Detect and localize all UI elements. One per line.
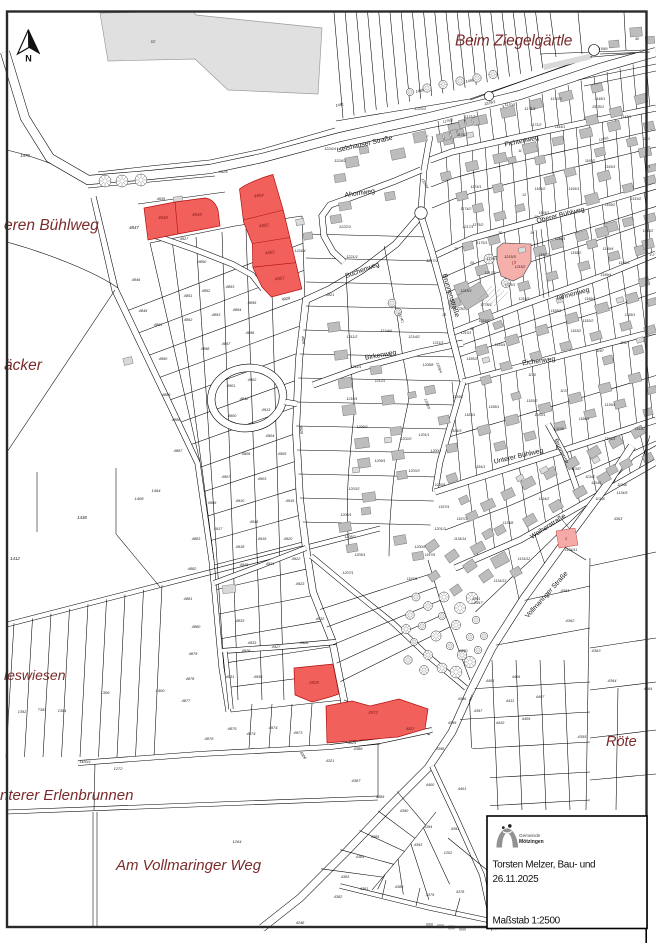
svg-text:Gemeinde: Gemeinde — [519, 833, 541, 838]
svg-text:4881: 4881 — [184, 596, 193, 601]
svg-text:1159/5: 1159/5 — [619, 261, 630, 265]
svg-text:10: 10 — [530, 231, 534, 235]
svg-text:4913: 4913 — [262, 407, 271, 412]
svg-text:11345: 11345 — [595, 497, 605, 501]
svg-text:1205/2: 1205/2 — [345, 535, 356, 539]
svg-text:4973: 4973 — [294, 730, 304, 735]
svg-text:1215/3: 1215/3 — [504, 255, 517, 259]
svg-text:7393: 7393 — [38, 708, 47, 712]
svg-text:4378: 4378 — [456, 890, 465, 894]
svg-text:4915: 4915 — [286, 498, 295, 503]
svg-text:1201/1: 1201/1 — [419, 433, 430, 437]
svg-text:1143/1: 1143/1 — [621, 115, 631, 119]
svg-text:4889: 4889 — [162, 392, 171, 397]
svg-text:4879: 4879 — [189, 651, 198, 656]
svg-text:4929: 4929 — [309, 680, 319, 685]
svg-text:4382: 4382 — [334, 895, 343, 899]
svg-text:4625: 4625 — [219, 169, 229, 174]
svg-text:4393: 4393 — [414, 843, 423, 847]
svg-text:11341: 11341 — [585, 475, 595, 479]
svg-text:1159/4: 1159/4 — [601, 273, 611, 277]
svg-text:4394: 4394 — [424, 825, 432, 829]
svg-text:4923: 4923 — [296, 581, 305, 586]
svg-text:4398: 4398 — [436, 747, 445, 751]
svg-text:1505/1: 1505/1 — [592, 104, 604, 109]
svg-text:4894: 4894 — [233, 307, 242, 312]
svg-text:121/4/2: 121/4/2 — [408, 335, 419, 339]
svg-text:4396: 4396 — [458, 697, 467, 701]
svg-text:16: 16 — [498, 231, 502, 235]
svg-text:4 2: 4 2 — [650, 253, 655, 257]
svg-text:4386: 4386 — [354, 746, 364, 751]
svg-text:1215/2: 1215/2 — [515, 265, 526, 269]
svg-text:4875: 4875 — [228, 726, 238, 731]
svg-text:1137: 1137 — [560, 389, 569, 393]
svg-text:1208/8: 1208/8 — [423, 363, 434, 367]
svg-text:1134/13: 1134/13 — [494, 579, 506, 583]
svg-text:4927: 4927 — [272, 644, 281, 649]
svg-text:1187: 1187 — [596, 349, 605, 353]
svg-text:4625: 4625 — [348, 741, 357, 745]
svg-text:4639: 4639 — [157, 197, 166, 201]
svg-text:4380: 4380 — [395, 885, 404, 889]
svg-text:1174/1: 1174/1 — [471, 185, 482, 189]
svg-text:4933: 4933 — [248, 640, 257, 645]
svg-text:4874: 4874 — [247, 731, 257, 736]
svg-text:4409: 4409 — [522, 717, 531, 721]
svg-text:1412: 1412 — [10, 556, 20, 561]
svg-text:1183/2: 1183/2 — [571, 329, 581, 333]
svg-text:1175/1: 1175/1 — [477, 241, 488, 245]
svg-text:4397: 4397 — [474, 709, 483, 713]
svg-text:4896: 4896 — [246, 330, 255, 335]
svg-text:13: 13 — [522, 193, 526, 197]
svg-text:1134/11: 1134/11 — [565, 548, 577, 552]
svg-text:4887: 4887 — [174, 448, 183, 453]
svg-text:4361: 4361 — [561, 588, 570, 593]
svg-text:1205/1: 1205/1 — [355, 553, 366, 557]
svg-text:121/4/4: 121/4/4 — [380, 329, 391, 333]
svg-text:4880: 4880 — [192, 624, 201, 629]
svg-text:4903: 4903 — [258, 476, 267, 481]
svg-text:4876: 4876 — [205, 736, 215, 741]
svg-text:4926: 4926 — [242, 648, 251, 653]
svg-text:4916: 4916 — [250, 519, 259, 524]
svg-text:1197/4: 1197/4 — [439, 505, 449, 509]
svg-text:29: 29 — [469, 261, 474, 265]
svg-text:1211/1: 1211/1 — [351, 365, 362, 369]
svg-text:4888: 4888 — [172, 417, 181, 422]
svg-text:1200/2: 1200/2 — [415, 545, 426, 549]
svg-text:4905: 4905 — [278, 451, 287, 456]
svg-text:4850: 4850 — [198, 259, 207, 264]
svg-text:nterer Erlenbrunnen: nterer Erlenbrunnen — [0, 787, 133, 804]
svg-text:1202: 1202 — [444, 851, 453, 855]
svg-text:1222/1: 1222/1 — [339, 224, 351, 229]
svg-text:4897: 4897 — [222, 341, 231, 346]
svg-text:40: 40 — [635, 37, 639, 41]
svg-text:4922: 4922 — [292, 556, 301, 561]
svg-text:1170/3: 1170/3 — [505, 103, 515, 107]
svg-text:11346: 11346 — [617, 483, 627, 487]
svg-text:1207/1: 1207/1 — [343, 571, 354, 575]
svg-text:4364: 4364 — [644, 687, 652, 691]
svg-text:1165/3: 1165/3 — [605, 165, 615, 169]
svg-text:4327: 4327 — [406, 727, 415, 731]
svg-text:4387: 4387 — [352, 778, 362, 783]
svg-text:4930: 4930 — [254, 674, 263, 679]
svg-text:Beim Ziegelgärtle: Beim Ziegelgärtle — [455, 33, 573, 50]
svg-text:4390: 4390 — [400, 809, 409, 813]
svg-text:1272: 1272 — [114, 766, 124, 771]
svg-text:1155/2: 1155/2 — [539, 253, 549, 257]
svg-text:4877: 4877 — [182, 698, 191, 703]
svg-text:1599: 1599 — [599, 46, 609, 51]
svg-text:4406: 4406 — [512, 675, 521, 679]
svg-text:1165/1: 1165/1 — [539, 211, 549, 215]
svg-text:4895: 4895 — [248, 300, 257, 305]
svg-text:1155/1: 1155/1 — [555, 237, 566, 241]
svg-text:4363: 4363 — [592, 648, 602, 653]
svg-text:1183/2: 1183/2 — [583, 319, 594, 323]
svg-text:Mötzingen: Mötzingen — [519, 839, 544, 845]
svg-text:4389: 4389 — [376, 795, 385, 799]
svg-text:1158/3: 1158/3 — [551, 309, 561, 313]
svg-text:4391: 4391 — [451, 827, 459, 831]
svg-text:4248: 4248 — [296, 921, 305, 925]
svg-text:11344: 11344 — [591, 481, 601, 485]
svg-text:1174/2: 1174/2 — [461, 207, 472, 211]
svg-text:4927: 4927 — [180, 237, 189, 241]
svg-text:1148/1: 1148/1 — [595, 97, 605, 101]
svg-text:1215/2: 1215/2 — [461, 289, 472, 293]
svg-text:4362: 4362 — [566, 618, 576, 623]
svg-text:Torsten Melzer, Bau- und: Torsten Melzer, Bau- und — [493, 860, 596, 871]
svg-text:1171/1: 1171/1 — [524, 107, 535, 111]
svg-text:1210/1: 1210/1 — [347, 397, 358, 401]
svg-text:1165/2: 1165/2 — [585, 159, 595, 163]
svg-text:1186/1: 1186/1 — [579, 417, 589, 421]
svg-text:4904: 4904 — [266, 433, 275, 438]
svg-text:4972: 4972 — [368, 710, 378, 715]
svg-text:4411: 4411 — [506, 699, 514, 703]
svg-text:4878: 4878 — [186, 676, 195, 681]
svg-text:Am Vollmaringer Weg: Am Vollmaringer Weg — [115, 857, 262, 874]
svg-text:4921: 4921 — [326, 293, 334, 297]
svg-text:1200/1: 1200/1 — [431, 449, 442, 453]
svg-text:4385: 4385 — [371, 835, 380, 839]
svg-text:20: 20 — [453, 247, 458, 251]
svg-text:4381: 4381 — [360, 887, 368, 891]
svg-text:4400: 4400 — [426, 783, 435, 787]
svg-text:1136: 1136 — [528, 373, 536, 377]
svg-text:1143/2: 1143/2 — [643, 229, 653, 233]
svg-text:4384: 4384 — [356, 855, 364, 859]
svg-text:1170/3: 1170/3 — [550, 97, 562, 101]
svg-text:1197/6: 1197/6 — [407, 577, 417, 581]
svg-text:1306: 1306 — [101, 690, 111, 695]
svg-text:1201/2: 1201/2 — [435, 527, 446, 531]
svg-text:1217/3: 1217/3 — [485, 271, 496, 275]
svg-text:1464: 1464 — [152, 488, 162, 493]
svg-text:eren Bühlweg: eren Bühlweg — [4, 217, 99, 234]
svg-text:4363: 4363 — [614, 517, 623, 521]
svg-text:1420/1: 1420/1 — [79, 760, 91, 764]
svg-text:4883: 4883 — [192, 536, 201, 541]
svg-text:4882: 4882 — [188, 566, 197, 571]
svg-text:4925: 4925 — [299, 425, 305, 435]
svg-text:4931: 4931 — [226, 674, 235, 679]
svg-text:1159/3: 1159/3 — [585, 297, 595, 301]
svg-text:1215/3: 1215/3 — [519, 297, 530, 301]
svg-text:1394: 1394 — [58, 709, 66, 713]
svg-text:4833: 4833 — [236, 618, 245, 623]
svg-text:4974: 4974 — [269, 725, 279, 730]
svg-text:4364: 4364 — [608, 678, 618, 683]
svg-text:4910: 4910 — [236, 498, 245, 503]
svg-text:1438: 1438 — [77, 515, 87, 520]
svg-text:1184/1: 1184/1 — [475, 465, 485, 469]
svg-text:4892: 4892 — [184, 317, 193, 322]
svg-text:4401: 4401 — [458, 787, 466, 791]
svg-text:4917: 4917 — [214, 526, 223, 531]
svg-text:1776/1: 1776/1 — [505, 283, 515, 287]
svg-text:60: 60 — [151, 39, 156, 44]
svg-text:1144/1: 1144/1 — [555, 125, 565, 129]
svg-text:leswiesen: leswiesen — [4, 667, 66, 683]
svg-text:1153/1: 1153/1 — [635, 427, 645, 431]
svg-text:4928: 4928 — [300, 640, 309, 645]
svg-text:1158/1: 1158/1 — [489, 405, 499, 409]
svg-text:1209/2: 1209/2 — [357, 425, 368, 429]
svg-text:1139/1: 1139/1 — [605, 403, 616, 407]
svg-text:Maßstab 1:2500: Maßstab 1:2500 — [493, 916, 561, 927]
svg-text:1153/2: 1153/2 — [631, 197, 641, 201]
svg-text:1206/1: 1206/1 — [341, 513, 352, 517]
svg-text:1136: 1136 — [556, 427, 564, 431]
svg-text:4902: 4902 — [248, 377, 257, 382]
svg-text:1134/12: 1134/12 — [518, 557, 530, 561]
svg-text:1203/2: 1203/2 — [349, 487, 360, 491]
svg-text:1183/4: 1183/4 — [495, 343, 505, 347]
svg-text:1209/1: 1209/1 — [375, 459, 386, 463]
svg-text:1171/2: 1171/2 — [465, 115, 475, 119]
svg-text:4907: 4907 — [222, 474, 231, 479]
svg-text:1183/2: 1183/2 — [453, 395, 463, 399]
svg-text:13: 13 — [442, 313, 446, 317]
svg-text:4920: 4920 — [284, 536, 293, 541]
svg-text:4924: 4924 — [266, 561, 275, 566]
svg-text:1134/2: 1134/2 — [539, 497, 549, 501]
svg-text:1185/2: 1185/2 — [467, 357, 478, 361]
svg-text:1134/14: 1134/14 — [454, 537, 466, 541]
svg-text:4847: 4847 — [129, 225, 139, 230]
svg-text:1223/3: 1223/3 — [414, 107, 427, 111]
svg-text:4925: 4925 — [240, 562, 249, 567]
svg-text:1165/2: 1165/2 — [535, 187, 546, 191]
svg-text:4383: 4383 — [341, 875, 350, 879]
svg-text:1137: 1137 — [620, 341, 629, 345]
svg-text:1264: 1264 — [233, 839, 243, 844]
svg-text:1211/3: 1211/3 — [433, 341, 443, 345]
svg-text:4919: 4919 — [258, 536, 267, 541]
svg-text:1212/1: 1212/1 — [375, 379, 385, 383]
svg-text:1159/4: 1159/4 — [603, 247, 614, 251]
svg-text:4918: 4918 — [236, 544, 245, 549]
svg-text:1171/2: 1171/2 — [531, 123, 542, 127]
svg-text:1224/4: 1224/4 — [295, 249, 306, 253]
svg-text:1183/1: 1183/1 — [535, 413, 546, 417]
svg-text:1165/1: 1165/1 — [569, 187, 580, 191]
svg-text:4851: 4851 — [184, 293, 193, 298]
svg-text:4405: 4405 — [486, 679, 495, 683]
svg-text:4350: 4350 — [459, 648, 469, 653]
svg-text:4846: 4846 — [132, 277, 141, 282]
svg-text:1174/2: 1174/2 — [457, 133, 467, 137]
svg-text:1221/1: 1221/1 — [346, 255, 358, 259]
svg-text:1778/2: 1778/2 — [455, 307, 466, 311]
svg-text:1139/1: 1139/1 — [625, 313, 635, 317]
svg-text:12: 12 — [534, 215, 538, 219]
svg-text:1408: 1408 — [135, 496, 145, 501]
svg-text:1224/2: 1224/2 — [334, 159, 347, 163]
svg-text:1183/2: 1183/2 — [527, 399, 538, 403]
svg-text:4845: 4845 — [139, 308, 148, 313]
svg-text:1183/1: 1183/1 — [465, 413, 475, 417]
svg-text:1400: 1400 — [156, 688, 166, 693]
svg-text:1197/5: 1197/5 — [425, 553, 435, 557]
svg-text:1778/1: 1778/1 — [480, 303, 492, 307]
svg-text:4932: 4932 — [316, 616, 325, 621]
svg-text:1392: 1392 — [18, 710, 27, 714]
svg-text:1479: 1479 — [20, 153, 30, 158]
svg-text:4929: 4929 — [301, 336, 306, 344]
svg-text:4893: 4893 — [212, 312, 221, 317]
svg-text:4900: 4900 — [228, 413, 237, 418]
svg-text:4853: 4853 — [226, 284, 235, 289]
svg-text:1134/8: 1134/8 — [503, 521, 513, 525]
svg-text:4842: 4842 — [240, 396, 249, 401]
svg-text:1224/4: 1224/4 — [324, 147, 336, 151]
svg-text:4848: 4848 — [158, 215, 168, 220]
svg-text:4898: 4898 — [201, 346, 210, 351]
svg-text:4321: 4321 — [326, 759, 334, 763]
svg-text:1134/5: 1134/5 — [617, 491, 628, 495]
svg-text:äcker: äcker — [4, 357, 43, 374]
svg-text:4407: 4407 — [536, 695, 545, 699]
svg-text:4355: 4355 — [578, 734, 588, 739]
svg-text:4849: 4849 — [192, 212, 202, 217]
svg-text:11347: 11347 — [571, 467, 582, 471]
svg-text:1211/2: 1211/2 — [347, 335, 358, 339]
svg-text:4379: 4379 — [426, 893, 435, 897]
svg-text:N: N — [25, 54, 32, 64]
svg-text:11: 11 — [518, 149, 522, 153]
svg-text:1176/1: 1176/1 — [487, 257, 498, 261]
svg-text:1175/2: 1175/2 — [473, 223, 484, 227]
svg-text:4852: 4852 — [202, 288, 211, 293]
svg-text:1215/2: 1215/2 — [479, 319, 490, 323]
svg-text:4906: 4906 — [242, 451, 251, 456]
svg-text:1197/3: 1197/3 — [457, 517, 467, 521]
svg-text:1158/2: 1158/2 — [571, 251, 581, 255]
svg-text:4399: 4399 — [448, 721, 457, 725]
svg-text:4357: 4357 — [474, 600, 484, 605]
svg-text:1203/3: 1203/3 — [409, 469, 420, 473]
svg-text:1159/2: 1159/2 — [605, 203, 615, 207]
svg-text:Röte: Röte — [606, 734, 637, 750]
svg-text:4969: 4969 — [208, 500, 217, 505]
svg-text:1217/2: 1217/2 — [426, 259, 439, 263]
svg-text:4891: 4891 — [154, 322, 163, 327]
svg-text:4890: 4890 — [159, 356, 168, 361]
svg-text:1203/4: 1203/4 — [435, 483, 445, 487]
svg-text:1154/1: 1154/1 — [605, 437, 615, 441]
svg-text:26.11.2025: 26.11.2025 — [493, 874, 540, 885]
svg-text:1213/1: 1213/1 — [461, 331, 472, 335]
svg-text:1184/3: 1184/3 — [451, 429, 462, 433]
svg-text:4901: 4901 — [227, 383, 236, 388]
svg-text:4410: 4410 — [496, 721, 505, 725]
svg-text:1202/2: 1202/2 — [401, 437, 412, 441]
